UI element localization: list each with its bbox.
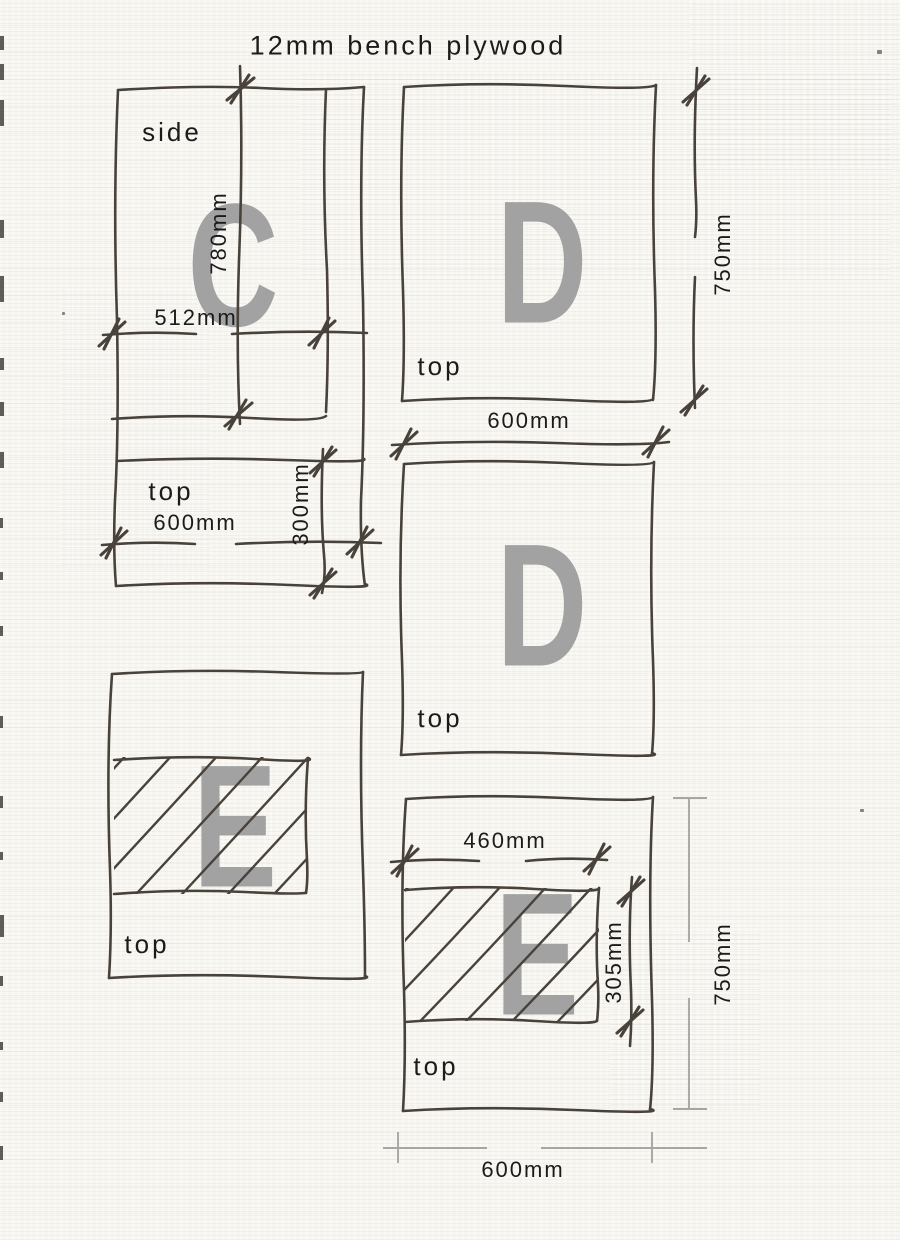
plywood-cutting-sketch: C D D E E [0, 0, 900, 1240]
scan-artifact [0, 1146, 3, 1160]
scan-artifact [0, 64, 4, 80]
scan-artifact [0, 1092, 3, 1102]
dim-label-512mm: 512mm [154, 307, 237, 329]
view-label-top-d1: top [417, 353, 462, 379]
scan-artifact [0, 796, 3, 808]
scan-artifact [0, 915, 4, 937]
scan-artifact [0, 852, 3, 860]
view-label-top-e2: top [413, 1053, 458, 1079]
scan-artifact [0, 976, 3, 986]
sheet-title: 12mm bench plywood [250, 33, 567, 60]
dim-line-750mm-gray [673, 798, 707, 1109]
scan-artifact [0, 100, 4, 126]
scan-artifact [0, 716, 3, 728]
scan-artifact [0, 626, 3, 636]
scan-speck [877, 50, 882, 54]
scan-artifact [0, 402, 4, 416]
dim-label-600mm-mid: 600mm [487, 410, 570, 432]
scan-artifact [0, 1042, 3, 1050]
scan-artifact [0, 572, 3, 580]
dim-line-750mm [681, 68, 709, 415]
dim-label-600mm-left: 600mm [153, 512, 236, 534]
view-label-side-c: side [142, 119, 202, 145]
dim-label-750mm-gray: 750mm [712, 922, 734, 1005]
scan-artifact [0, 276, 4, 302]
dim-label-600mm-bottom: 600mm [481, 1159, 564, 1181]
scan-speck [860, 809, 864, 812]
scan-artifact [0, 36, 4, 50]
dim-label-305mm: 305mm [603, 920, 625, 1003]
dim-label-460mm: 460mm [463, 830, 546, 852]
scan-artifact [0, 358, 4, 370]
dim-line-300mm [310, 447, 336, 598]
view-label-top-c: top [148, 478, 193, 504]
panel-c-outline [112, 87, 367, 587]
dim-line-600mm-left [101, 527, 381, 558]
dim-label-780mm: 780mm [208, 191, 230, 274]
scan-artifact [0, 452, 4, 468]
scan-artifact [0, 220, 4, 238]
view-label-top-d2: top [417, 705, 462, 731]
scan-speck [62, 312, 65, 315]
view-label-top-e1: top [124, 931, 169, 957]
dim-label-300mm: 300mm [290, 462, 312, 545]
dim-label-750mm: 750mm [712, 212, 734, 295]
scan-artifact [0, 518, 3, 528]
